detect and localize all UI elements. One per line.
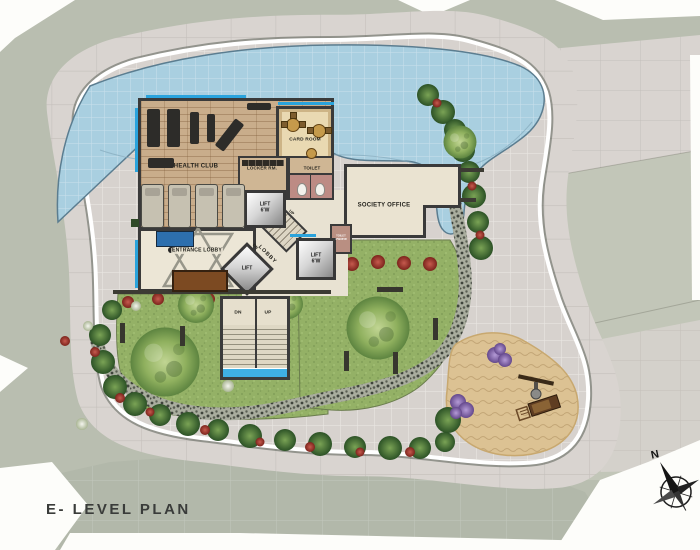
pool-edge-accent — [135, 240, 138, 288]
garden-stairs — [220, 296, 290, 380]
stairs-dn-label: DN — [234, 310, 241, 316]
card-table — [312, 124, 326, 138]
card-table — [286, 118, 300, 132]
chair-icon — [290, 112, 297, 119]
entrance-lobby-label: ENTRANCE LOBBY — [171, 248, 223, 254]
stair-divider — [255, 299, 257, 377]
pool-edge-accent — [290, 234, 316, 237]
wall-stub — [460, 168, 484, 172]
lockers-row — [242, 160, 284, 166]
locker-room-label: LOCKER RM. — [247, 166, 277, 171]
health-club-label: HEALTH CLUB — [174, 164, 218, 171]
water-feature — [223, 368, 287, 377]
pool-edge-accent — [135, 108, 138, 172]
pool-edge-accent — [278, 102, 334, 105]
massage-bed — [141, 184, 164, 228]
massage-bed — [168, 184, 191, 228]
wall-stub — [460, 198, 476, 202]
chair-icon — [281, 121, 288, 128]
site-plan: HEALTH CLUB CARD ROOM LOCKER RM. TOILET … — [0, 0, 700, 550]
chair-icon — [307, 127, 314, 134]
society-office-ext — [423, 164, 461, 208]
lift-right-label: LIFT6'W — [311, 254, 322, 265]
planter — [131, 219, 139, 227]
toilet-label: TOILET — [304, 166, 321, 171]
weight-tower-icon — [207, 114, 215, 142]
massage-bed — [222, 184, 245, 228]
society-office-label: SOCIETY OFFICE — [358, 203, 411, 210]
wc-icon — [315, 183, 325, 196]
wc-icon — [297, 183, 307, 196]
exercise-machine-icon — [148, 158, 174, 168]
stairs-up-label: UP — [265, 310, 272, 316]
lobby-table — [172, 270, 228, 292]
card-table — [306, 148, 317, 159]
pool-edge-accent — [146, 95, 246, 98]
card-room-label: CARD ROOM — [289, 137, 321, 143]
lift-top-label: LIFT6'W — [260, 203, 271, 214]
reception-desk — [156, 231, 194, 247]
chair-icon — [299, 121, 306, 128]
massage-bed — [195, 184, 218, 228]
chair-icon — [325, 127, 332, 134]
toilet-room — [288, 156, 334, 200]
page-title: E- LEVEL PLAN — [46, 501, 191, 518]
lift-center-label: LIFT — [242, 266, 253, 272]
treadmill-icon — [167, 109, 180, 147]
small-toilet-label: TOILET4'WX6'W — [335, 235, 346, 241]
weight-rack-icon — [247, 103, 271, 110]
landscape-layer — [0, 0, 700, 550]
society-office — [344, 164, 426, 238]
cable-machine-icon — [190, 112, 199, 144]
treadmill-icon — [147, 109, 160, 147]
